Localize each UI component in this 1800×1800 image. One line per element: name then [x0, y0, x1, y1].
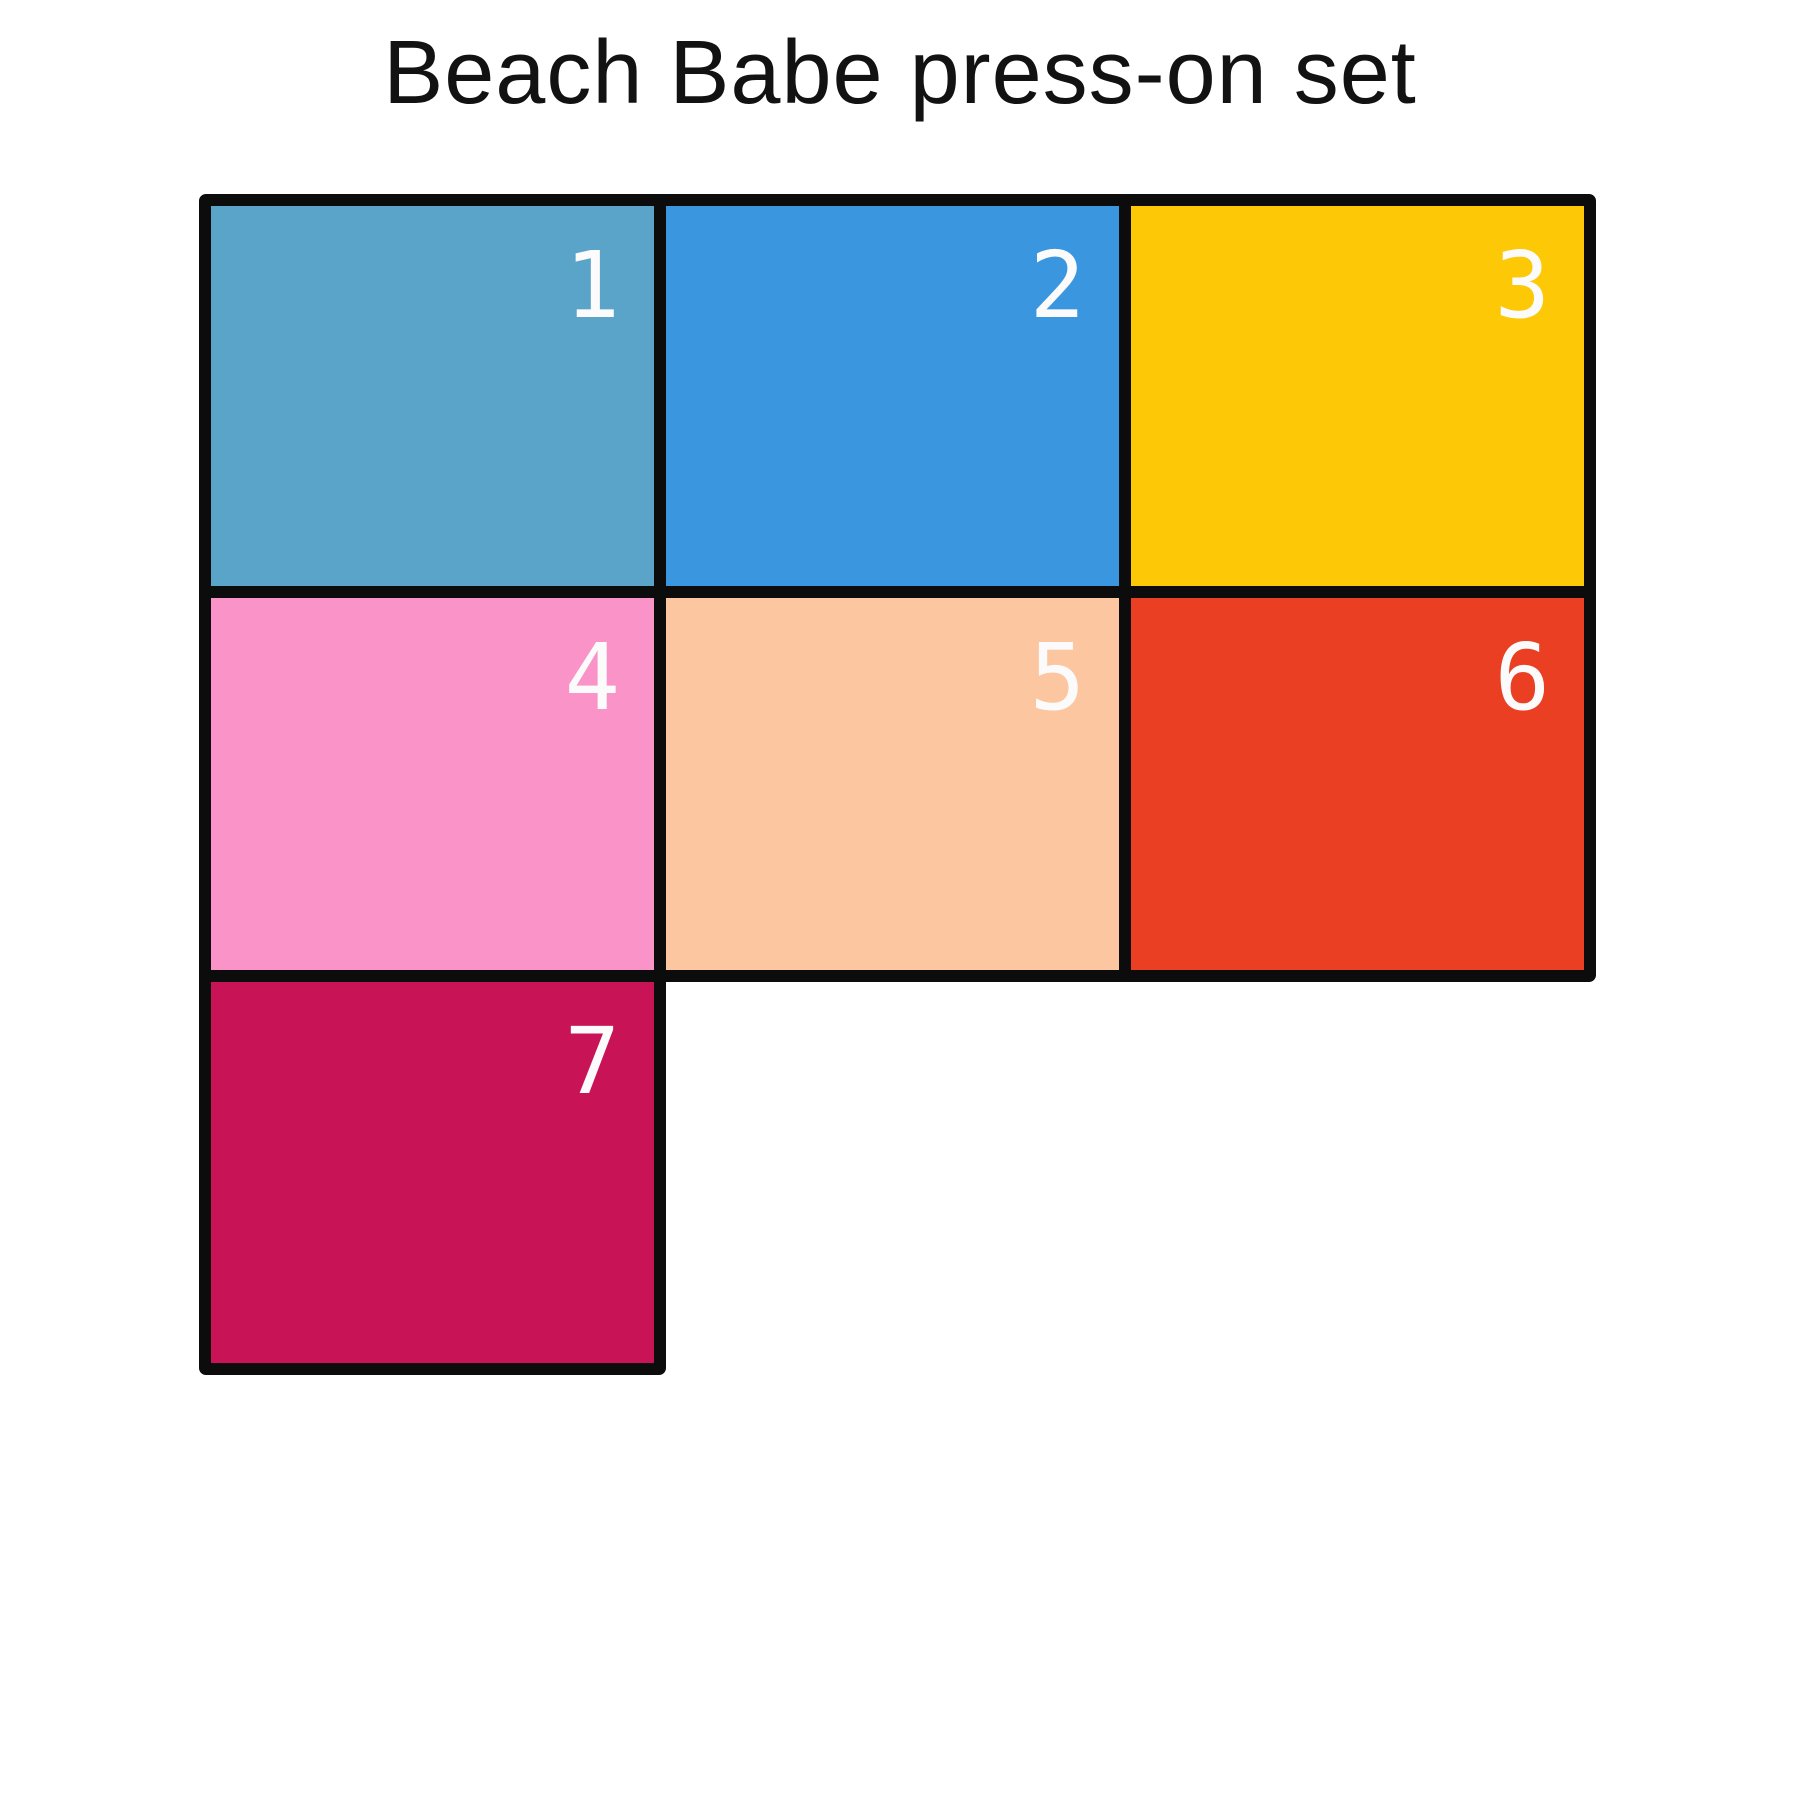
swatch-2-number: 2 — [1030, 240, 1085, 332]
swatch-4: 4 — [199, 586, 666, 982]
swatch-4-number: 4 — [565, 632, 620, 724]
swatch-5-number: 5 — [1030, 632, 1085, 724]
swatch-3: 3 — [1119, 194, 1596, 598]
swatch-1: 1 — [199, 194, 666, 598]
swatch-7-number: 7 — [565, 1016, 620, 1108]
swatch-1-number: 1 — [565, 240, 620, 332]
page-title: Beach Babe press-on set — [0, 28, 1800, 118]
swatch-7: 7 — [199, 970, 666, 1375]
swatch-5: 5 — [654, 586, 1131, 982]
swatch-3-number: 3 — [1495, 240, 1550, 332]
swatch-6: 6 — [1119, 586, 1596, 982]
swatch-6-number: 6 — [1495, 632, 1550, 724]
page-canvas: Beach Babe press-on set 1 2 3 4 5 6 7 — [0, 0, 1800, 1800]
swatch-2: 2 — [654, 194, 1131, 598]
